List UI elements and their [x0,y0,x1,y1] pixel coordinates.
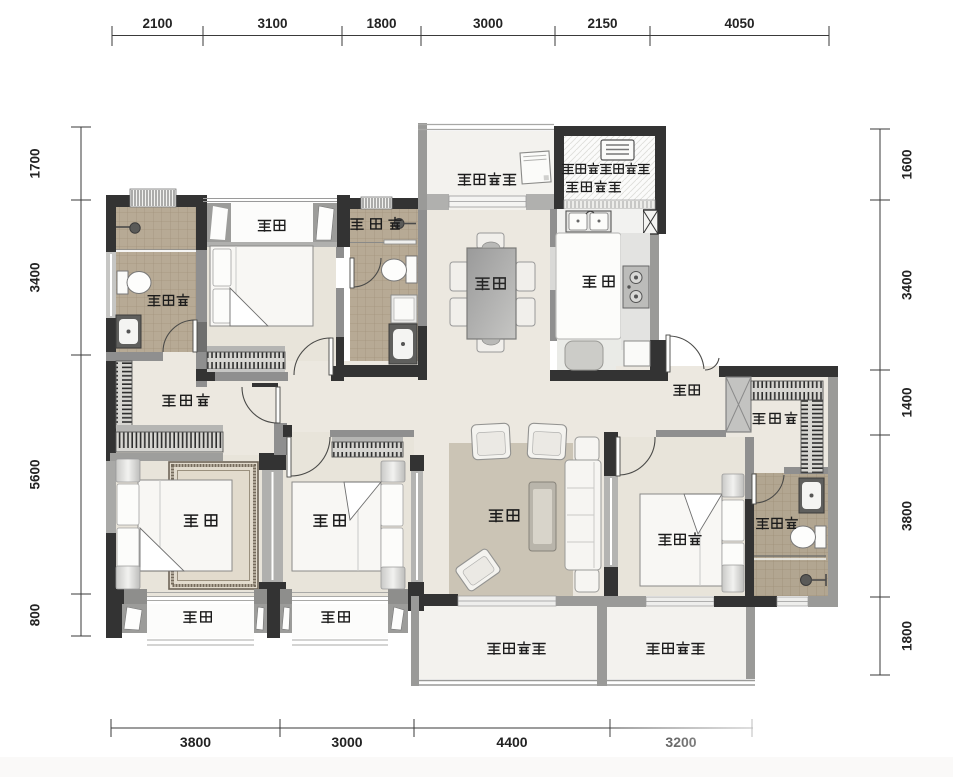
svg-text:3000: 3000 [473,16,503,31]
svg-text:5600: 5600 [28,459,43,489]
svg-text:4050: 4050 [724,16,754,31]
svg-text:3800: 3800 [900,501,915,531]
svg-text:1800: 1800 [900,621,915,651]
svg-text:3800: 3800 [180,734,211,750]
svg-text:2150: 2150 [587,16,617,31]
svg-text:2100: 2100 [142,16,172,31]
svg-text:3100: 3100 [257,16,287,31]
svg-text:1700: 1700 [28,148,43,178]
svg-text:1400: 1400 [900,387,915,417]
svg-text:3000: 3000 [331,734,362,750]
svg-text:1800: 1800 [366,16,396,31]
svg-text:3400: 3400 [900,270,915,300]
svg-text:800: 800 [28,604,43,627]
svg-text:4400: 4400 [496,734,527,750]
svg-text:1600: 1600 [900,149,915,179]
svg-text:3400: 3400 [28,262,43,292]
